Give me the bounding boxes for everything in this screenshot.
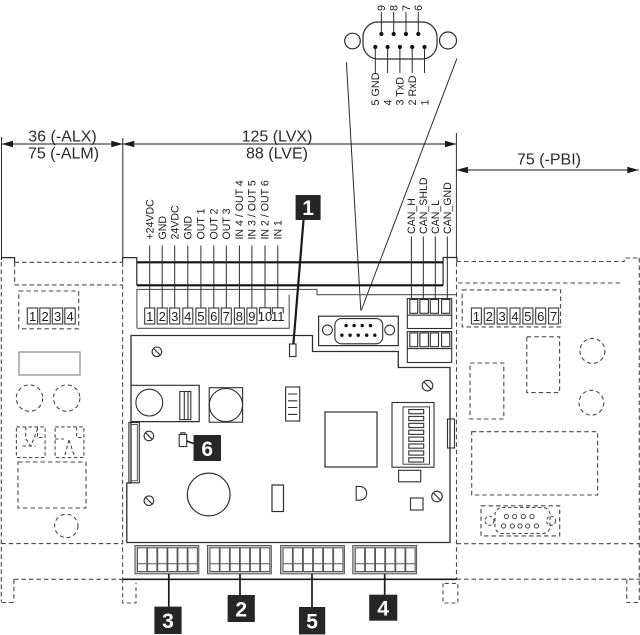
- svg-text:36 (-ALX): 36 (-ALX): [28, 129, 96, 146]
- svg-text:125 (LVX): 125 (LVX): [242, 129, 313, 146]
- svg-text:8: 8: [389, 5, 401, 11]
- svg-text:8: 8: [236, 309, 243, 324]
- svg-text:5: 5: [306, 611, 318, 634]
- svg-text:6: 6: [537, 309, 544, 324]
- svg-text:5: 5: [524, 309, 531, 324]
- svg-text:5 GND: 5 GND: [370, 72, 382, 105]
- svg-text:7: 7: [401, 5, 413, 11]
- svg-text:3: 3: [498, 309, 505, 324]
- svg-text:9: 9: [248, 309, 255, 324]
- svg-text:4: 4: [377, 598, 389, 621]
- svg-text:3: 3: [54, 309, 61, 324]
- svg-text:1: 1: [302, 197, 314, 220]
- svg-text:OUT 2: OUT 2: [209, 208, 221, 239]
- svg-text:CAN_L: CAN_L: [430, 200, 442, 234]
- svg-text:CAN_H: CAN_H: [406, 198, 418, 234]
- svg-text:GND: GND: [157, 216, 169, 240]
- svg-text:IN 1: IN 1: [273, 220, 285, 240]
- svg-text:3 TxD: 3 TxD: [395, 77, 407, 106]
- svg-text:5: 5: [197, 309, 204, 324]
- svg-text:OUT 3: OUT 3: [221, 208, 233, 239]
- svg-text:CAN_GND: CAN_GND: [442, 182, 454, 234]
- svg-text:IN 4 / OUT 4: IN 4 / OUT 4: [234, 180, 246, 239]
- svg-text:4: 4: [66, 309, 73, 324]
- svg-text:OUT 1: OUT 1: [196, 208, 208, 239]
- svg-text:88 (LVE): 88 (LVE): [246, 146, 308, 163]
- svg-text:CAN_SHLD: CAN_SHLD: [418, 177, 430, 234]
- svg-text:2 RxD: 2 RxD: [407, 75, 419, 105]
- svg-text:7: 7: [223, 309, 230, 324]
- svg-text:1: 1: [146, 309, 153, 324]
- svg-text:11: 11: [271, 309, 285, 324]
- svg-text:1: 1: [419, 99, 431, 105]
- svg-text:9: 9: [376, 5, 388, 11]
- svg-text:IN 3 / OUT 5: IN 3 / OUT 5: [247, 180, 259, 239]
- svg-text:6: 6: [210, 309, 217, 324]
- svg-text:4: 4: [511, 309, 518, 324]
- svg-text:4: 4: [382, 99, 394, 105]
- svg-text:1: 1: [29, 309, 36, 324]
- svg-text:2: 2: [159, 309, 166, 324]
- svg-text:4: 4: [184, 309, 191, 324]
- svg-text:2: 2: [41, 309, 48, 324]
- svg-text:3: 3: [171, 309, 178, 324]
- svg-text:75 (-ALM): 75 (-ALM): [28, 146, 99, 163]
- svg-text:1: 1: [473, 309, 480, 324]
- svg-text:2: 2: [235, 598, 247, 621]
- svg-text:GND: GND: [183, 216, 195, 240]
- svg-text:75 (-PBI): 75 (-PBI): [517, 152, 581, 169]
- svg-text:6: 6: [201, 438, 213, 461]
- svg-text:3: 3: [162, 610, 174, 633]
- svg-text:+24VDC: +24VDC: [144, 199, 156, 240]
- svg-text:24VDC: 24VDC: [169, 205, 181, 239]
- svg-text:7: 7: [550, 309, 557, 324]
- svg-text:2: 2: [486, 309, 493, 324]
- svg-text:IN 2 / OUT 6: IN 2 / OUT 6: [260, 180, 272, 239]
- svg-text:6: 6: [413, 5, 425, 11]
